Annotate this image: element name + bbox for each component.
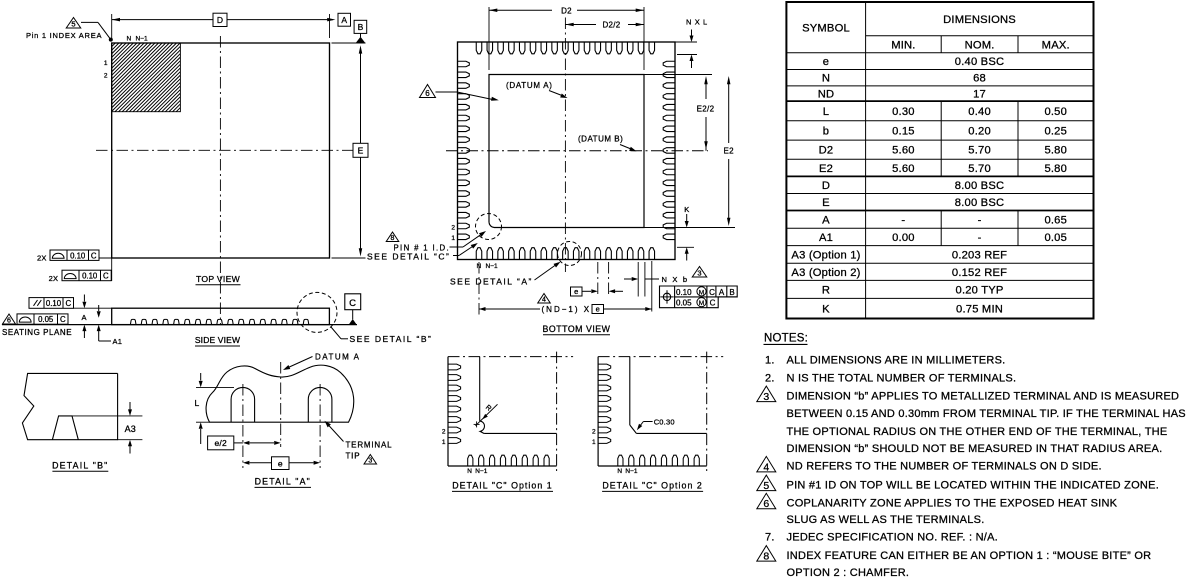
svg-text:5.70: 5.70	[968, 163, 991, 175]
svg-text:C: C	[349, 298, 356, 309]
svg-text:-: -	[978, 232, 982, 244]
svg-text:1.: 1.	[765, 355, 775, 367]
svg-text:3: 3	[763, 391, 769, 403]
svg-text:1: 1	[442, 439, 446, 446]
svg-text:0.75 MIN: 0.75 MIN	[956, 303, 1003, 315]
svg-text:2: 2	[592, 428, 596, 435]
svg-text:ND REFERS TO THE NUMBER OF TER: ND REFERS TO THE NUMBER OF TERMINALS ON …	[787, 461, 1102, 473]
svg-text:K: K	[822, 303, 830, 315]
svg-text:e: e	[574, 287, 578, 296]
svg-text:N−1: N−1	[625, 468, 637, 475]
svg-text:A: A	[719, 288, 725, 297]
svg-text:e: e	[596, 304, 600, 313]
svg-text:C0.30: C0.30	[654, 418, 675, 427]
svg-text:THE OPTIONAL RADIUS ON THE OTH: THE OPTIONAL RADIUS ON THE OTHER END OF …	[787, 426, 1168, 438]
svg-text:DIMENSION “b” SHOULD NOT BE ME: DIMENSION “b” SHOULD NOT BE MEASURED IN …	[787, 443, 1163, 455]
svg-text:1: 1	[451, 235, 455, 242]
svg-text:B: B	[729, 288, 734, 297]
svg-text:1: 1	[104, 60, 108, 67]
svg-text:8: 8	[763, 551, 769, 563]
svg-text:A3: A3	[125, 424, 136, 434]
svg-text:(DATUM B): (DATUM B)	[578, 135, 623, 144]
svg-text:INDEX FEATURE CAN EITHER BE AN: INDEX FEATURE CAN EITHER BE AN OPTION 1 …	[787, 550, 1152, 562]
svg-text:D: D	[822, 180, 830, 192]
svg-text:BOTTOM VIEW: BOTTOM VIEW	[543, 324, 611, 334]
svg-text:TIP: TIP	[346, 452, 361, 461]
svg-text:A: A	[822, 214, 830, 226]
svg-text:2X: 2X	[37, 254, 47, 263]
svg-text:L: L	[823, 106, 829, 118]
svg-text:C: C	[91, 251, 97, 260]
svg-text:6: 6	[425, 89, 430, 98]
svg-text:D2: D2	[819, 145, 834, 157]
svg-text:E: E	[822, 197, 830, 209]
svg-text:E2/2: E2/2	[697, 104, 715, 113]
svg-text:0.50: 0.50	[1044, 106, 1067, 118]
svg-text:N X L: N X L	[686, 18, 708, 27]
svg-text:N: N	[467, 468, 472, 475]
svg-text:8.00 BSC: 8.00 BSC	[955, 197, 1005, 209]
svg-text:C: C	[65, 299, 71, 308]
svg-text:C: C	[60, 315, 66, 324]
svg-text:6: 6	[7, 317, 11, 324]
svg-text:2X: 2X	[49, 274, 59, 283]
svg-text:0.15: 0.15	[892, 125, 915, 137]
svg-text:COPLANARITY ZONE APPLIES TO TH: COPLANARITY ZONE APPLIES TO THE EXPOSED …	[787, 498, 1118, 510]
svg-text:A1: A1	[113, 337, 123, 346]
svg-text:R: R	[822, 284, 830, 296]
svg-text:MAX.: MAX.	[1042, 39, 1070, 51]
svg-text:SEE DETAIL “C”: SEE DETAIL “C”	[367, 251, 450, 261]
svg-text:NOM.: NOM.	[965, 39, 995, 51]
svg-text:0.40: 0.40	[968, 106, 991, 118]
svg-text:A: A	[81, 313, 86, 322]
svg-text:TERMINAL: TERMINAL	[346, 441, 393, 450]
svg-text:-: -	[901, 214, 905, 226]
svg-text:B: B	[358, 22, 364, 32]
svg-text:SLUG AS WELL AS THE TERMINALS.: SLUG AS WELL AS THE TERMINALS.	[787, 514, 985, 526]
svg-text:JEDEC SPECIFICATION NO. REF. :: JEDEC SPECIFICATION NO. REF. : N/A.	[787, 532, 998, 544]
svg-text:2.: 2.	[765, 373, 775, 385]
svg-text:C: C	[103, 272, 109, 281]
svg-text:SEATING PLANE: SEATING PLANE	[2, 328, 72, 337]
svg-text:A1: A1	[819, 232, 833, 244]
svg-text:0.25: 0.25	[1044, 125, 1067, 137]
svg-text:C: C	[709, 288, 715, 297]
svg-text:0.30: 0.30	[892, 106, 915, 118]
svg-text:DIMENSIONS: DIMENSIONS	[943, 14, 1016, 26]
svg-text:OPTION 2 : CHAMFER.: OPTION 2 : CHAMFER.	[787, 567, 910, 579]
svg-text:(DATUM A): (DATUM A)	[506, 81, 553, 90]
svg-text:7.: 7.	[765, 532, 775, 544]
svg-text:E: E	[358, 146, 364, 156]
svg-text:N X b: N X b	[662, 275, 689, 284]
svg-text:3: 3	[368, 457, 372, 464]
svg-text:4: 4	[542, 296, 546, 303]
svg-text:A: A	[341, 15, 347, 25]
svg-text:TOP VIEW: TOP VIEW	[196, 274, 241, 284]
svg-text:5.80: 5.80	[1044, 163, 1067, 175]
svg-text:0.10: 0.10	[676, 288, 692, 297]
svg-text:e/2: e/2	[214, 438, 226, 448]
svg-text:0.10: 0.10	[82, 272, 98, 281]
svg-text:68: 68	[973, 73, 986, 85]
svg-text:BETWEEN 0.15 AND 0.30mm FROM T: BETWEEN 0.15 AND 0.30mm FROM TERMINAL TI…	[787, 408, 1186, 420]
svg-text:0.05: 0.05	[1044, 232, 1067, 244]
svg-text:2: 2	[451, 225, 455, 232]
svg-text:e: e	[823, 56, 829, 68]
svg-text:E2: E2	[819, 163, 833, 175]
svg-text:SYMBOL: SYMBOL	[802, 22, 850, 34]
svg-text:A3 (Option 1): A3 (Option 1)	[791, 249, 860, 261]
svg-text:4: 4	[763, 461, 769, 473]
svg-text:8: 8	[391, 235, 395, 242]
svg-text:0.05: 0.05	[38, 315, 54, 324]
svg-text:DETAIL "C" Option 2: DETAIL "C" Option 2	[602, 481, 703, 491]
svg-text:D: D	[217, 15, 223, 25]
svg-text:8.00 BSC: 8.00 BSC	[955, 180, 1005, 192]
svg-text:A3 (Option 2): A3 (Option 2)	[791, 267, 860, 279]
svg-text:PIN #1 ID ON TOP WILL BE LOCAT: PIN #1 ID ON TOP WILL BE LOCATED WITHIN …	[787, 479, 1160, 491]
svg-text:N IS THE TOTAL NUMBER OF TERMI: N IS THE TOTAL NUMBER OF TERMINALS.	[787, 373, 1017, 385]
svg-text:DATUM A: DATUM A	[315, 353, 360, 362]
svg-text:SIDE VIEW: SIDE VIEW	[195, 335, 240, 345]
svg-text:3: 3	[697, 268, 701, 277]
svg-text:D2/2: D2/2	[602, 21, 620, 30]
svg-text:N−1: N−1	[475, 468, 487, 475]
svg-text:6: 6	[763, 498, 769, 510]
svg-text:L: L	[195, 398, 200, 408]
svg-text:2: 2	[104, 73, 108, 80]
svg-text:M: M	[699, 289, 704, 296]
svg-text:E2: E2	[724, 147, 735, 156]
svg-text:DIMENSION “b” APPLIES TO METAL: DIMENSION “b” APPLIES TO METALLIZED TERM…	[787, 390, 1180, 402]
svg-text:5: 5	[71, 19, 75, 28]
svg-text:N−1: N−1	[486, 263, 498, 270]
svg-text:D2: D2	[561, 6, 572, 15]
svg-text:C: C	[710, 299, 716, 308]
svg-text:0.10: 0.10	[70, 251, 86, 260]
svg-text:Pin 1 INDEX AREA: Pin 1 INDEX AREA	[26, 31, 102, 40]
svg-text:N: N	[127, 36, 132, 43]
svg-text:1: 1	[592, 439, 596, 446]
svg-text:0.20 TYP: 0.20 TYP	[956, 284, 1004, 296]
svg-text:DETAIL "B": DETAIL "B"	[52, 461, 108, 471]
svg-text:5.70: 5.70	[968, 145, 991, 157]
svg-text:0.203 REF: 0.203 REF	[952, 249, 1007, 261]
svg-text:K: K	[684, 205, 689, 214]
svg-text:5.80: 5.80	[1044, 145, 1067, 157]
svg-text:0.40 BSC: 0.40 BSC	[955, 56, 1005, 68]
svg-text:DETAIL "A": DETAIL "A"	[255, 477, 311, 487]
svg-text:-: -	[978, 214, 982, 226]
svg-text:(ND−1) X: (ND−1) X	[542, 305, 592, 314]
svg-text:N: N	[822, 73, 830, 85]
svg-text:5.60: 5.60	[892, 145, 915, 157]
svg-text:0.20: 0.20	[968, 125, 991, 137]
svg-text:SEE DETAIL “B”: SEE DETAIL “B”	[350, 334, 433, 344]
svg-text:DETAIL "C" Option 1: DETAIL "C" Option 1	[452, 481, 553, 491]
svg-text:NOTES:: NOTES:	[764, 333, 808, 345]
svg-text:N: N	[617, 468, 622, 475]
svg-text:0.10: 0.10	[46, 299, 62, 308]
svg-text:0.05: 0.05	[676, 299, 692, 308]
svg-text:N−1: N−1	[136, 36, 148, 43]
svg-text:17: 17	[973, 89, 986, 101]
svg-text:5: 5	[763, 480, 769, 492]
svg-text:5.60: 5.60	[892, 163, 915, 175]
svg-text:SEE DETAIL “A”: SEE DETAIL “A”	[450, 276, 533, 286]
svg-text:ND: ND	[818, 89, 835, 101]
svg-text:2: 2	[442, 428, 446, 435]
svg-text:0.65: 0.65	[1044, 214, 1067, 226]
svg-text:MIN.: MIN.	[891, 39, 915, 51]
svg-text:ALL DIMENSIONS ARE IN MILLIMET: ALL DIMENSIONS ARE IN MILLIMETERS.	[787, 355, 1006, 367]
svg-text:b: b	[823, 125, 829, 137]
svg-text:0.152 REF: 0.152 REF	[952, 267, 1007, 279]
svg-text:e: e	[278, 458, 283, 468]
svg-text:0.00: 0.00	[892, 232, 915, 244]
svg-text:N: N	[477, 263, 482, 270]
svg-text:M: M	[699, 300, 704, 307]
